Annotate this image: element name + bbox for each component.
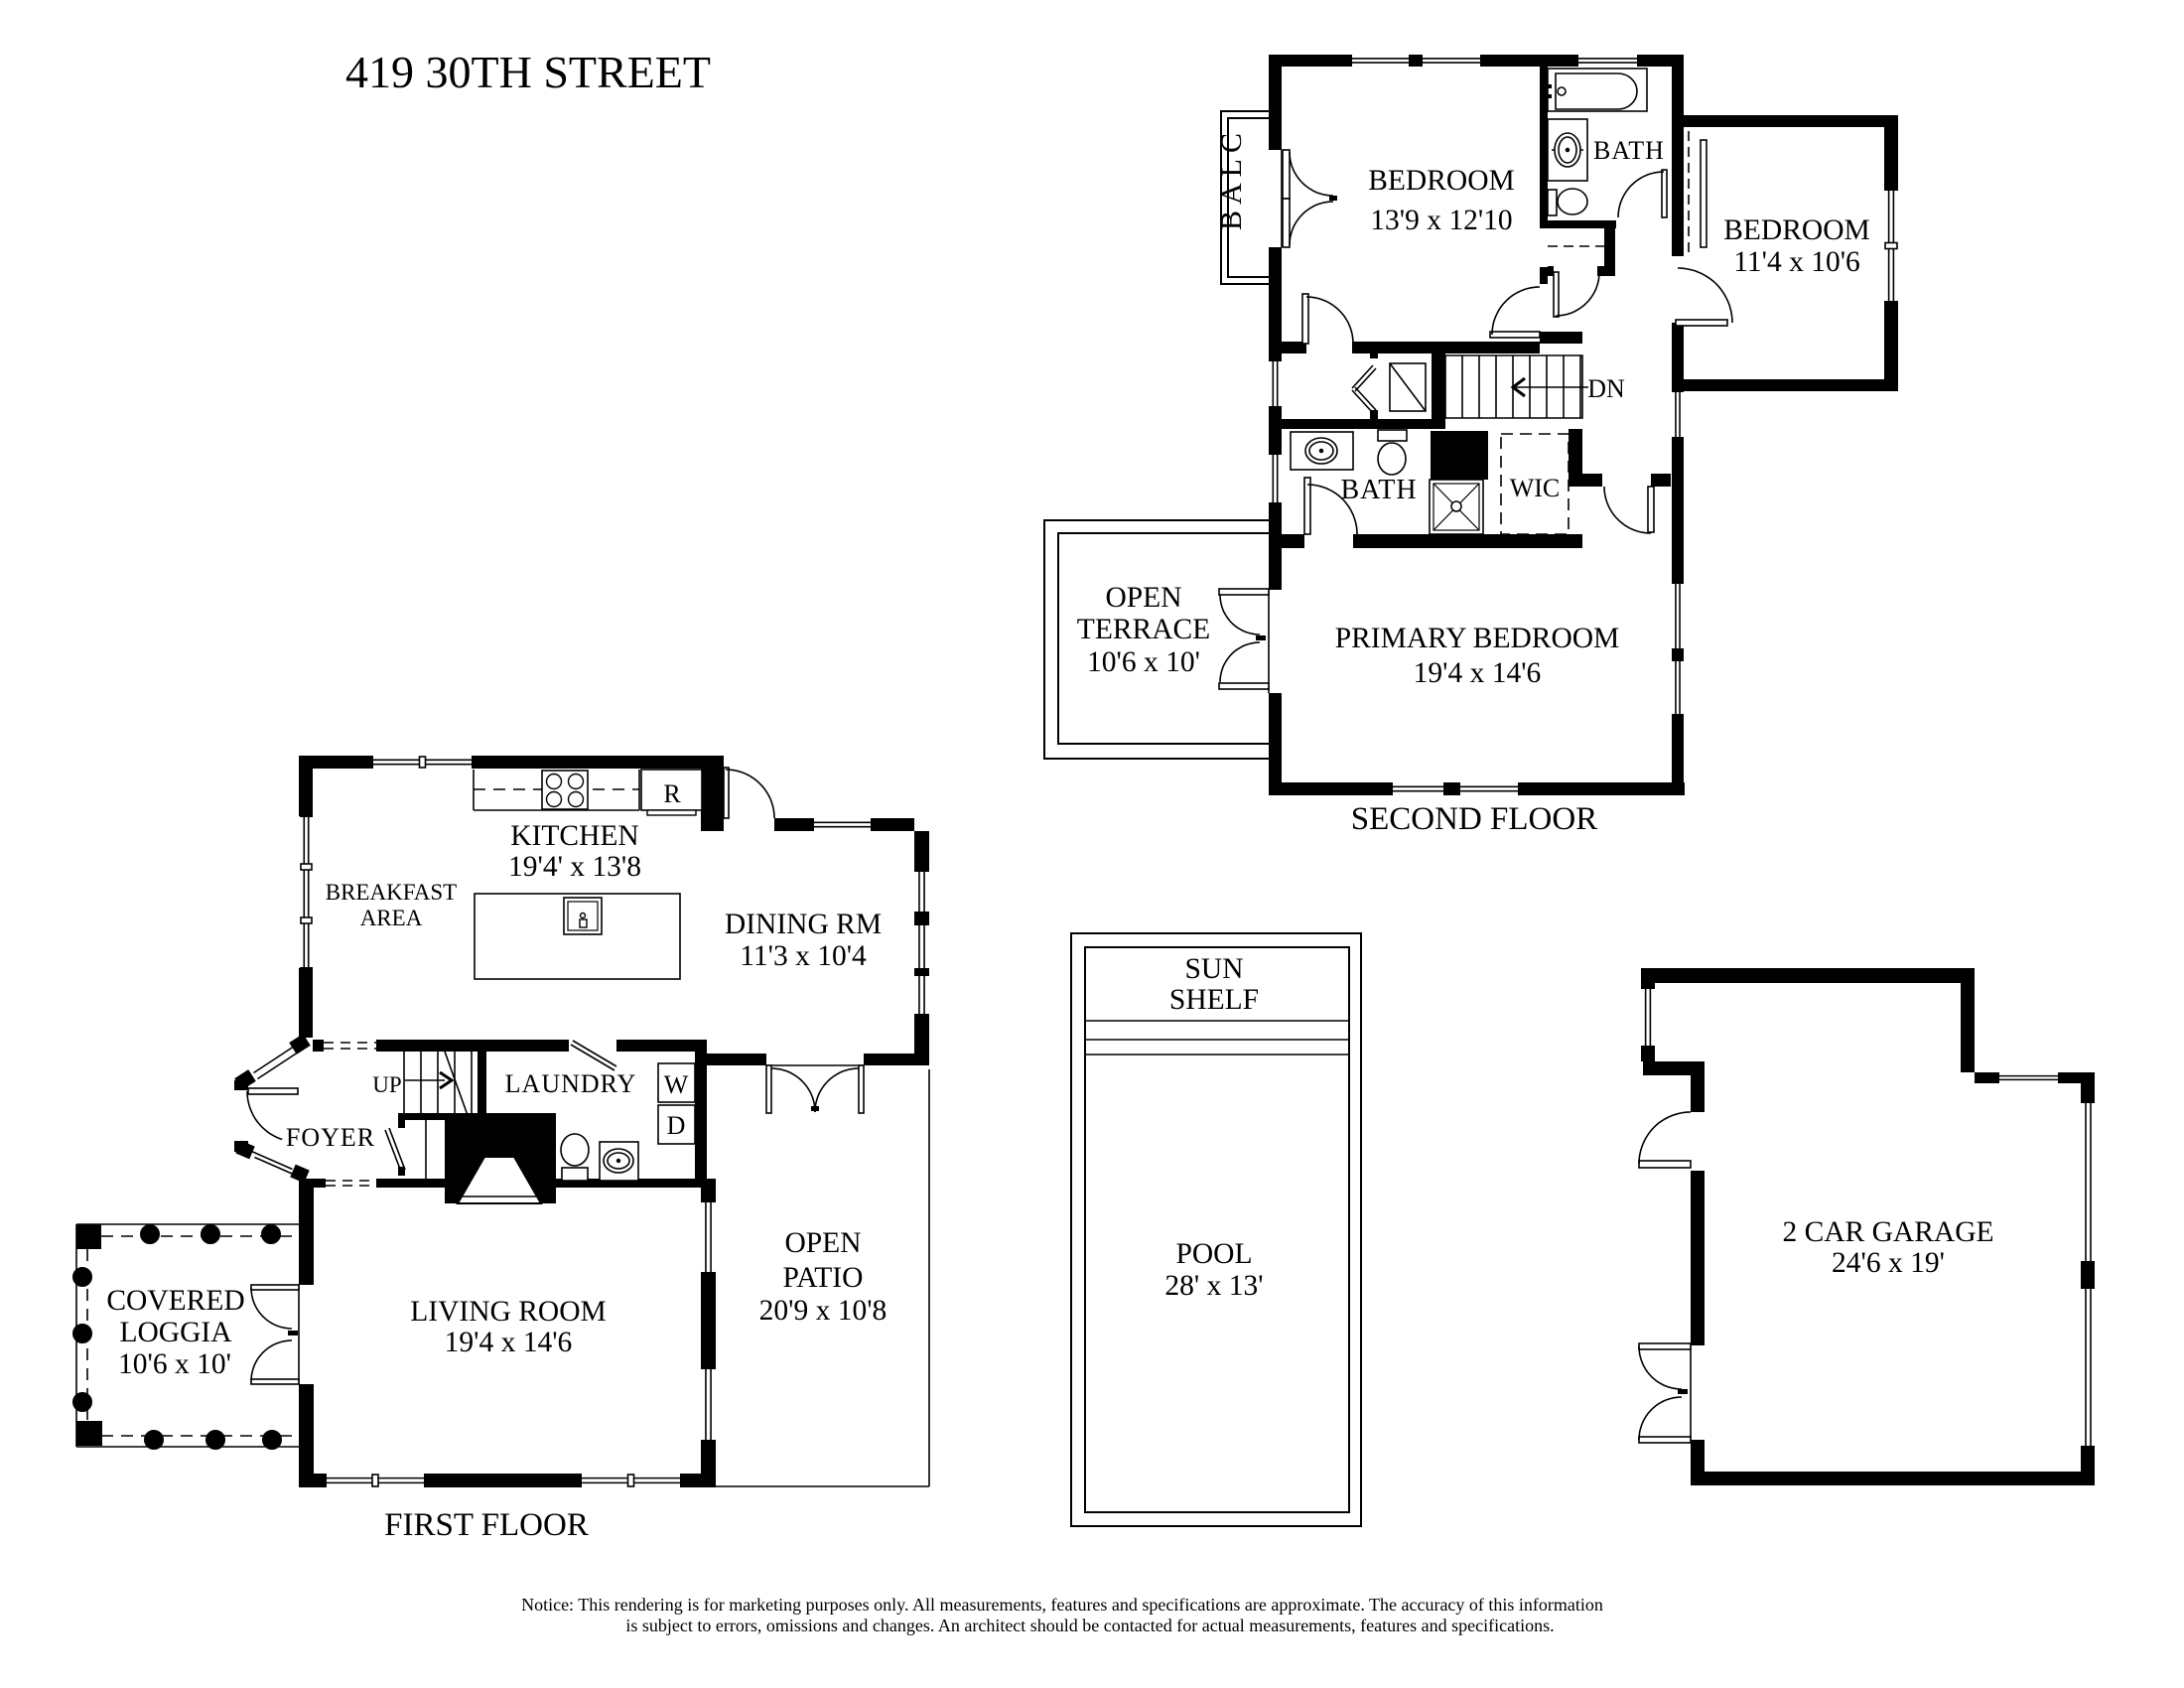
svg-text:11'3 x 10'4: 11'3 x 10'4	[740, 940, 867, 972]
svg-text:BALC: BALC	[1215, 127, 1248, 230]
svg-text:11'4 x 10'6: 11'4 x 10'6	[1733, 246, 1860, 278]
svg-text:BREAKFAST: BREAKFAST	[326, 880, 458, 905]
svg-text:BATH: BATH	[1593, 136, 1665, 165]
svg-text:SUN: SUN	[1184, 953, 1243, 985]
svg-text:10'6 x 10': 10'6 x 10'	[1087, 646, 1200, 678]
svg-text:LOGGIA: LOGGIA	[119, 1317, 232, 1348]
svg-text:OPEN: OPEN	[784, 1227, 861, 1259]
svg-text:is subject to errors, omission: is subject to errors, omissions and chan…	[625, 1616, 1554, 1635]
svg-text:FOYER: FOYER	[286, 1123, 375, 1152]
svg-text:BEDROOM: BEDROOM	[1368, 165, 1515, 197]
svg-text:2 CAR GARAGE: 2 CAR GARAGE	[1782, 1216, 1993, 1248]
svg-text:LIVING ROOM: LIVING ROOM	[410, 1296, 606, 1328]
svg-text:28' x 13': 28' x 13'	[1164, 1270, 1263, 1302]
svg-text:AREA: AREA	[360, 906, 423, 930]
svg-text:20'9 x 10'8: 20'9 x 10'8	[759, 1295, 887, 1327]
svg-text:19'4 x 14'6: 19'4 x 14'6	[1414, 657, 1542, 689]
svg-text:13'9 x 12'10: 13'9 x 12'10	[1370, 205, 1512, 236]
svg-text:POOL: POOL	[1175, 1238, 1252, 1270]
svg-text:PRIMARY BEDROOM: PRIMARY BEDROOM	[1335, 623, 1620, 654]
svg-text:D: D	[667, 1111, 686, 1140]
svg-text:UP: UP	[372, 1072, 401, 1097]
svg-text:TERRACE: TERRACE	[1077, 614, 1210, 645]
svg-text:BATH: BATH	[1340, 475, 1417, 505]
svg-text:KITCHEN: KITCHEN	[510, 820, 638, 852]
svg-text:OPEN: OPEN	[1105, 582, 1181, 614]
svg-text:W: W	[664, 1070, 689, 1099]
svg-text:R: R	[663, 779, 681, 808]
svg-text:SHELF: SHELF	[1169, 984, 1259, 1016]
svg-text:10'6 x 10': 10'6 x 10'	[118, 1348, 231, 1380]
svg-text:24'6 x 19': 24'6 x 19'	[1832, 1247, 1945, 1279]
svg-text:BEDROOM: BEDROOM	[1723, 214, 1870, 246]
svg-text:DINING RM: DINING RM	[725, 909, 882, 940]
svg-text:PATIO: PATIO	[783, 1262, 864, 1294]
svg-text:19'4' x 13'8: 19'4' x 13'8	[508, 851, 641, 883]
svg-text:SECOND FLOOR: SECOND FLOOR	[1351, 801, 1597, 837]
svg-text:419 30TH STREET: 419 30TH STREET	[345, 47, 711, 97]
svg-text:19'4 x 14'6: 19'4 x 14'6	[445, 1327, 573, 1358]
svg-text:WIC: WIC	[1510, 474, 1561, 502]
svg-text:LAUNDRY: LAUNDRY	[505, 1069, 637, 1098]
svg-text:DN: DN	[1587, 374, 1625, 403]
svg-text:Notice: This rendering is for: Notice: This rendering is for marketing …	[521, 1595, 1603, 1615]
svg-text:FIRST FLOOR: FIRST FLOOR	[384, 1507, 589, 1543]
svg-text:COVERED: COVERED	[106, 1285, 244, 1317]
